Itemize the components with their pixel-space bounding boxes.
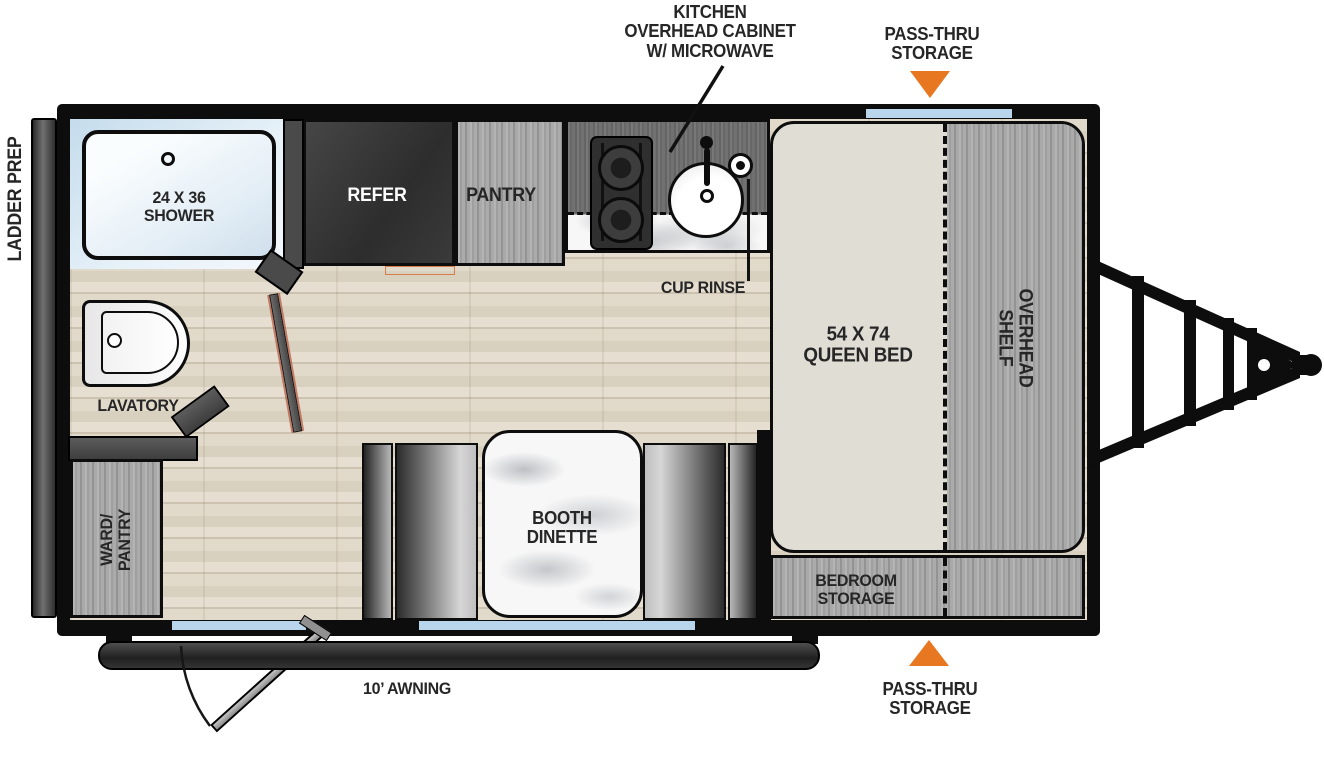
- booth-dinette-label: BOOTH DINETTE: [527, 509, 597, 548]
- sink-faucet-stem: [704, 148, 710, 186]
- bathroom-wall-stub: [283, 119, 304, 269]
- tongue-crossbar-2: [1184, 300, 1196, 426]
- floorplan-canvas: LADDER PREP KITCHEN OVERHEAD CABINET W/ …: [0, 0, 1324, 773]
- ladder-prep-label: LADDER PREP: [6, 137, 26, 262]
- bed-window: [866, 109, 1012, 118]
- lavatory-partition-wall: [68, 436, 198, 461]
- sink-drain-icon: [700, 189, 714, 203]
- cup-rinse-leader-line: [747, 179, 750, 281]
- tongue-crossbar-3: [1223, 318, 1234, 410]
- bed-shelf-dashed-divider: [943, 124, 947, 550]
- stove-burner-front: [598, 145, 644, 191]
- storage-dashed-divider: [943, 558, 947, 616]
- pantry-label: PANTRY: [466, 186, 536, 206]
- heat-register: [385, 266, 455, 275]
- bath-side-window: [172, 621, 306, 630]
- trailer-tongue: [1087, 240, 1324, 490]
- toilet-flush-icon: [107, 333, 122, 348]
- bed-divider-wall: [757, 430, 771, 620]
- ladder-prep-bar: [31, 118, 57, 618]
- kitchen-overhead-label: KITCHEN OVERHEAD CABINET W/ MICROWAVE: [624, 3, 795, 61]
- toilet: [82, 300, 190, 387]
- dinette-seat-left: [395, 443, 478, 620]
- ward-pantry-label: WARD/ PANTRY: [98, 509, 134, 571]
- awning-bar: [98, 641, 820, 670]
- shower-drain-icon: [161, 152, 175, 166]
- pass-thru-arrow-top: [910, 71, 950, 98]
- dinette-window: [419, 621, 695, 630]
- pass-thru-top-label: PASS-THRU STORAGE: [885, 25, 980, 64]
- awning-label: 10’ AWNING: [363, 680, 451, 698]
- cup-rinse-dot: [736, 161, 745, 170]
- hitch-coupler: [1300, 354, 1322, 376]
- pass-thru-bottom-label: PASS-THRU STORAGE: [883, 680, 978, 719]
- lavatory-label: LAVATORY: [97, 397, 178, 415]
- dinette-backrest-left: [362, 443, 393, 620]
- shower-label: 24 X 36 SHOWER: [144, 189, 214, 225]
- dinette-backrest-right: [728, 443, 758, 620]
- refer-label: REFER: [347, 186, 406, 206]
- kitchen-counter: [565, 119, 770, 253]
- cup-rinse-label: CUP RINSE: [661, 279, 745, 297]
- cup-rinse-fixture: [728, 153, 753, 178]
- tongue-crossbar-1: [1132, 276, 1144, 448]
- tongue-plate-hole: [1257, 358, 1271, 372]
- dinette-seat-right: [643, 443, 726, 620]
- stove-burner-rear: [598, 197, 644, 243]
- pass-thru-arrow-bottom: [909, 640, 949, 666]
- queen-bed-label: 54 X 74 QUEEN BED: [803, 325, 912, 368]
- overhead-shelf-label: OVERHEAD SHELF: [994, 289, 1035, 388]
- bedroom-storage-label: BEDROOM STORAGE: [815, 572, 896, 608]
- stove: [590, 136, 653, 250]
